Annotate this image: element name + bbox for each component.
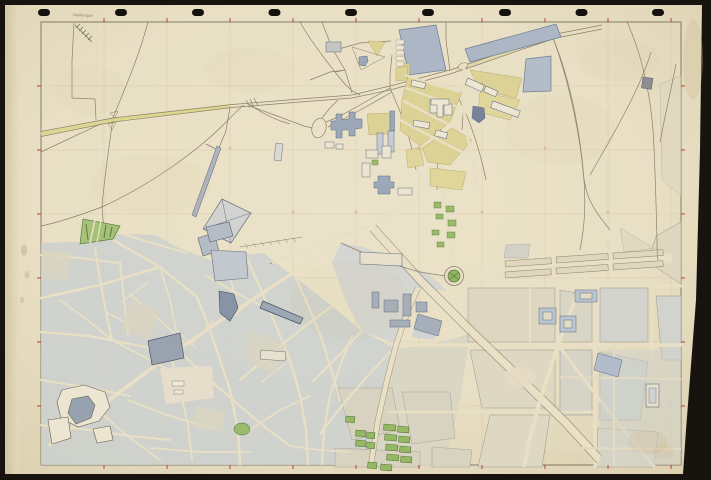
svg-text:Dunkerque: Dunkerque bbox=[73, 12, 94, 18]
